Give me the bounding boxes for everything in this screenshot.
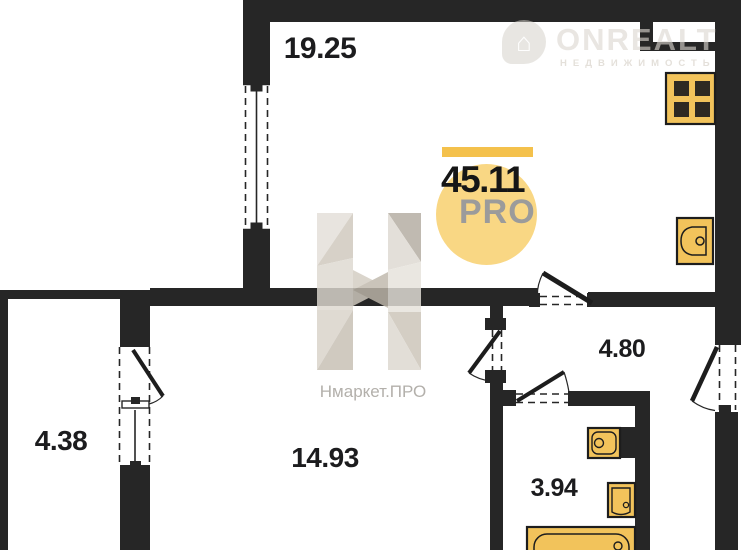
door-jamb (503, 390, 516, 406)
stove-icon (666, 73, 715, 124)
onrealt-logo-subtext: НЕДВИЖИМОСТЬ (560, 58, 716, 69)
bathtub-icon (527, 527, 635, 550)
pro-badge-label: PRO (459, 193, 536, 232)
floor-plan-canvas: 19.25 4.38 14.93 4.80 3.94 45.11 PRO ⌂ O… (0, 0, 741, 550)
wall (120, 465, 150, 550)
washbasin-icon (588, 428, 620, 458)
window-icon (243, 83, 270, 231)
wall (120, 290, 150, 347)
room-area-label-living-kitchen: 19.25 (260, 32, 380, 66)
room-area-label-balcony: 4.38 (1, 425, 121, 457)
kitchen-sink-icon (677, 218, 713, 264)
wall (715, 412, 738, 550)
door-icon (516, 372, 570, 403)
wall (0, 290, 122, 299)
wall (490, 378, 503, 550)
wall (635, 392, 650, 550)
nmarket-watermark-text: Нмаркет.ПРО (308, 382, 438, 402)
pro-badge-bar (442, 147, 533, 157)
wall (588, 292, 715, 307)
faceted-H-logo-icon (317, 213, 421, 370)
door-jamb (485, 318, 506, 330)
onrealt-logo-text: ONREALT (556, 22, 718, 58)
door-jamb (529, 293, 540, 307)
onrealt-watermark: ⌂ ONREALT НЕДВИЖИМОСТЬ (498, 14, 741, 74)
balcony-door-window-icon (120, 346, 164, 469)
entrance-door-icon (692, 345, 736, 411)
room-area-label-hallway: 4.80 (562, 335, 682, 364)
room-area-label-bathroom: 3.94 (494, 474, 614, 503)
door-icon (537, 273, 592, 305)
plumbing-block (620, 427, 635, 458)
wall (0, 290, 8, 550)
location-pin-house-icon: ⌂ (502, 20, 546, 64)
wall (719, 405, 731, 413)
room-area-label-room: 14.93 (265, 442, 385, 474)
